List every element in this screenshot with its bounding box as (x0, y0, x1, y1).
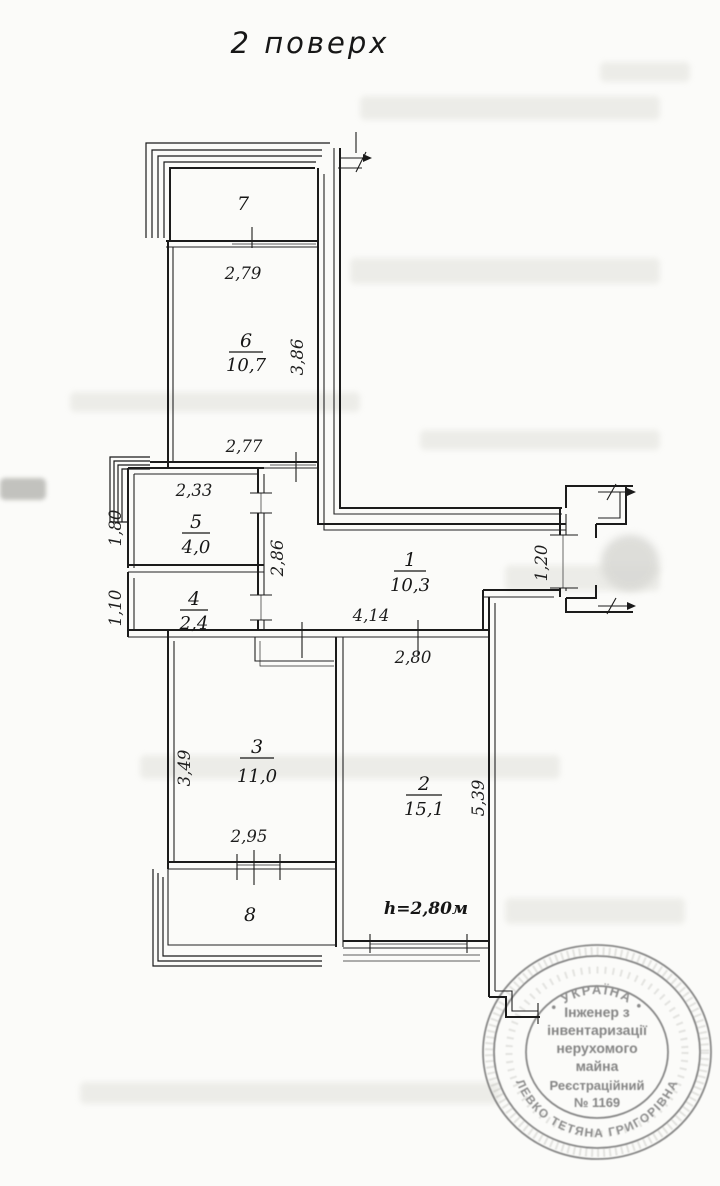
dim-2-79: 2,79 (224, 264, 262, 283)
room2-number: 2 (417, 773, 430, 795)
section-mark (338, 152, 366, 172)
stamp-title-line3: нерухомого (556, 1040, 637, 1056)
room4-number: 4 (187, 588, 200, 610)
balcony8-railing-line (158, 873, 322, 961)
door-jamb-tick (237, 854, 280, 880)
dim-2-33: 2,33 (175, 481, 213, 500)
wall-segment (324, 174, 566, 530)
dim-5-39: 5,39 (469, 780, 488, 817)
dim-1-80: 1,80 (106, 510, 125, 547)
room6-area: 10,7 (226, 355, 267, 376)
dim-4-14: 4,14 (352, 606, 390, 625)
balcony7-railing-line (146, 143, 330, 238)
window-jamb-tick (370, 934, 467, 953)
room2-area: 15,1 (404, 799, 444, 820)
room1-number: 1 (404, 549, 416, 571)
room6-number: 6 (240, 330, 252, 352)
dim-2-77: 2,77 (225, 437, 263, 456)
labels: 2 поверх 7 6 10,7 5 4,0 4 2,4 1 10,3 3 1… (106, 26, 551, 926)
room5-area: 4,0 (181, 537, 211, 558)
section-arrow-head (627, 488, 636, 496)
wall-segment (566, 486, 633, 508)
room4-area: 2,4 (179, 613, 209, 634)
room1-area: 10,3 (390, 575, 430, 596)
room3-area: 11,0 (237, 766, 277, 787)
section-arrow-head (627, 602, 636, 610)
sill-line (343, 955, 480, 961)
door-jamb-tick (550, 535, 578, 588)
room8-number: 8 (244, 904, 256, 926)
ceiling-height-note: h=2,80м (384, 899, 468, 919)
dim-2-86: 2,86 (268, 540, 287, 578)
room3-number: 3 (251, 736, 263, 758)
wall-segment (334, 148, 562, 514)
dim-3-49: 3,49 (175, 750, 194, 787)
wall-segment (260, 641, 334, 666)
room7-number: 7 (237, 193, 250, 215)
niche-line (122, 469, 150, 522)
wall-segment (566, 598, 633, 612)
floor-plan-drawing: • УКРАЇНА • Інженер з інвентаризації нер… (0, 0, 720, 1186)
stamp-title-line4: майна (576, 1058, 619, 1074)
stamp-title-line2: інвентаризації (547, 1022, 648, 1038)
wall-segment (255, 637, 334, 661)
stamp-registration-label: Реєстраційний (550, 1078, 645, 1093)
room5-number: 5 (190, 511, 202, 533)
dim-2-95: 2,95 (230, 827, 268, 846)
dim-1-10: 1,10 (106, 590, 125, 627)
stamp-title-line1: Інженер з (564, 1004, 630, 1020)
inventory-engineer-stamp: • УКРАЇНА • Інженер з інвентаризації нер… (483, 945, 711, 1159)
dim-3-86: 3,86 (288, 339, 307, 376)
wall-segment (566, 585, 596, 598)
balcony8-railing-line (163, 877, 322, 956)
dim-2-80: 2,80 (394, 648, 432, 667)
stamp-registration-number: № 1169 (574, 1095, 620, 1110)
blurred-spot (601, 535, 659, 591)
balcony8-railing-line (153, 869, 322, 966)
dim-1-20: 1,20 (532, 545, 551, 582)
wall-segment (318, 168, 566, 524)
wall-segment (340, 148, 562, 508)
page-title: 2 поверх (231, 26, 390, 60)
scanned-floor-plan-page: • УКРАЇНА • Інженер з інвентаризації нер… (0, 0, 720, 1186)
walls (110, 132, 636, 1024)
